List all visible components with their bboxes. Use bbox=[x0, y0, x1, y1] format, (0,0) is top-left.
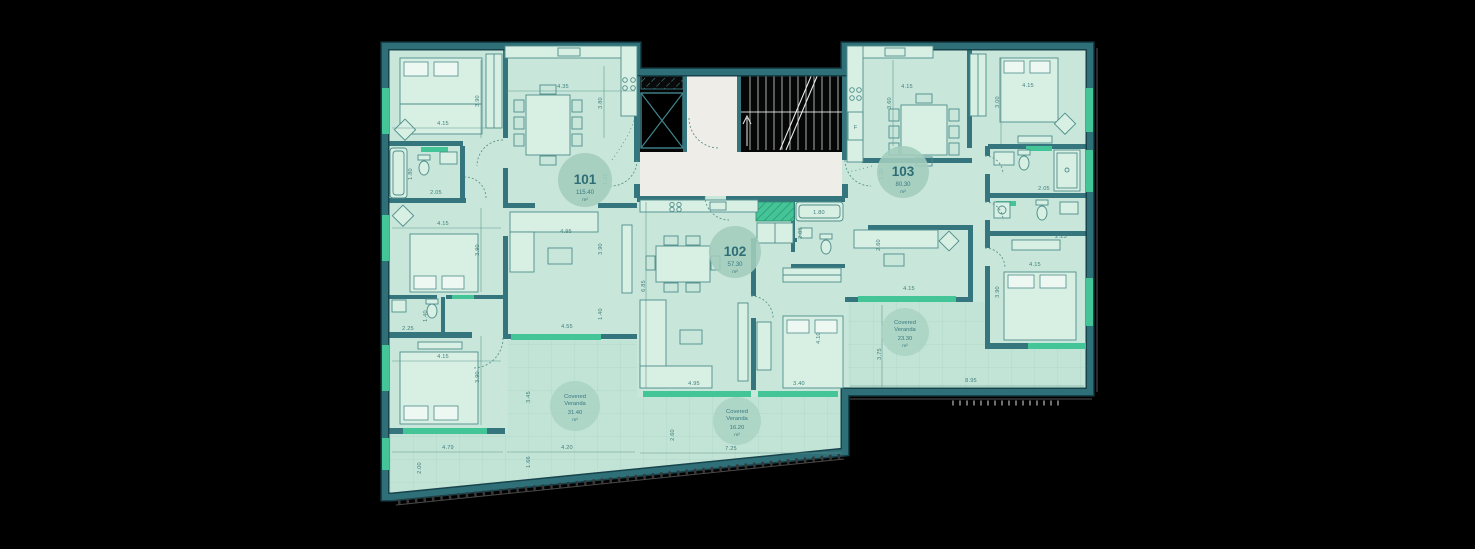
dimension-label: 1.40 bbox=[423, 310, 429, 322]
dimension-label: 2.00 bbox=[417, 462, 423, 474]
veranda-badge-102: Covered Veranda 16.20 m² bbox=[713, 397, 761, 445]
sofa-icon bbox=[640, 366, 712, 388]
dimension-label: 2.05 bbox=[430, 190, 442, 196]
staircase bbox=[741, 72, 842, 152]
toilet-icon bbox=[820, 234, 832, 239]
window-icon bbox=[382, 438, 389, 470]
veranda-area: 16.20 bbox=[730, 425, 745, 431]
dimension-label: 4.15 bbox=[437, 121, 449, 127]
pillow-icon bbox=[414, 276, 436, 289]
dimension-label: 4.95 bbox=[560, 229, 572, 235]
dimension-label: 3.90 bbox=[475, 371, 481, 383]
veranda-label: Veranda bbox=[726, 416, 748, 422]
dimension-label: 4.15 bbox=[1029, 262, 1041, 268]
floor-plan-canvas: F bbox=[0, 0, 1475, 549]
pillow-icon bbox=[1008, 275, 1034, 288]
dimension-label: 2.25 bbox=[402, 326, 414, 332]
dimension-label: 2.25 bbox=[1055, 234, 1067, 240]
dimension-label: 8.95 bbox=[965, 378, 977, 384]
unit-number: 101 bbox=[574, 172, 597, 187]
dimension-label: 4.15 bbox=[901, 84, 913, 90]
window-icon bbox=[382, 345, 389, 391]
dimension-label: 4.79 bbox=[442, 445, 454, 451]
window-icon bbox=[382, 215, 389, 261]
dimension-label: 3.00 bbox=[995, 96, 1001, 108]
fridge-label: F bbox=[854, 125, 858, 131]
dimension-label: 2.05 bbox=[798, 227, 804, 239]
pillow-icon bbox=[434, 406, 458, 420]
dimension-label: 4.95 bbox=[688, 381, 700, 387]
veranda-label: Veranda bbox=[894, 327, 916, 333]
unit-number: 103 bbox=[892, 164, 915, 179]
sliding-door-icon bbox=[403, 428, 487, 434]
toilet-icon bbox=[1018, 150, 1030, 155]
unit-area-unit: m² bbox=[582, 197, 588, 203]
pillow-icon bbox=[815, 320, 837, 333]
dresser-icon bbox=[418, 342, 462, 349]
dimension-label: 4.10 bbox=[816, 332, 822, 344]
kitchen-counter bbox=[847, 46, 863, 162]
dimension-label: 7.25 bbox=[725, 446, 737, 452]
corridor-vertical bbox=[687, 72, 741, 152]
veranda-area-unit: m² bbox=[734, 432, 740, 438]
dimension-label: 4.15 bbox=[903, 286, 915, 292]
veranda-area: 31.40 bbox=[568, 410, 583, 416]
tv-bench-icon bbox=[622, 225, 632, 293]
unit-number: 102 bbox=[724, 244, 747, 259]
niche-icon bbox=[452, 295, 474, 299]
sliding-door-icon bbox=[1028, 343, 1086, 349]
sliding-door-icon bbox=[643, 391, 751, 397]
veranda-area-unit: m² bbox=[572, 417, 578, 423]
sink-icon bbox=[392, 300, 406, 312]
dresser-icon bbox=[1018, 136, 1052, 143]
dimension-label: 1.80 bbox=[408, 168, 414, 180]
unit-area: 115.40 bbox=[576, 190, 595, 196]
unit-badge-102[interactable]: 102 57.30 m² bbox=[709, 226, 761, 278]
sliding-door-icon bbox=[758, 391, 838, 397]
veranda-label: Veranda bbox=[564, 401, 586, 407]
dimension-label: 2.05 bbox=[1038, 186, 1050, 192]
dimension-label: 1.80 bbox=[813, 210, 825, 216]
unit-area-unit: m² bbox=[900, 189, 906, 195]
toilet-icon bbox=[1036, 200, 1048, 205]
sliding-door-icon bbox=[858, 296, 956, 302]
sofa-chaise-icon bbox=[510, 232, 534, 272]
toilet-icon bbox=[426, 299, 438, 304]
pillow-icon bbox=[404, 62, 428, 76]
dining-table-icon bbox=[526, 95, 570, 155]
washing-machine-icon bbox=[994, 202, 1010, 218]
window-icon bbox=[382, 88, 389, 134]
veranda-label: Covered bbox=[564, 394, 586, 400]
pillow-icon bbox=[434, 62, 458, 76]
toilet-icon bbox=[418, 155, 430, 160]
window-icon bbox=[1086, 88, 1093, 132]
unit-badge-103[interactable]: 103 80.30 m² bbox=[877, 146, 929, 198]
unit-area: 80.30 bbox=[895, 182, 911, 188]
wardrobe-icon bbox=[1012, 240, 1060, 250]
veranda-label: Covered bbox=[726, 409, 748, 415]
dimension-label: 4.20 bbox=[561, 445, 573, 451]
sofa-icon bbox=[854, 230, 938, 248]
pillow-icon bbox=[404, 406, 428, 420]
sink-icon bbox=[994, 152, 1014, 165]
niche-icon bbox=[421, 147, 448, 152]
pillow-icon bbox=[1030, 61, 1050, 73]
pillow-icon bbox=[442, 276, 464, 289]
sliding-door-icon bbox=[511, 334, 601, 340]
dimension-label: 3.90 bbox=[995, 286, 1001, 298]
unit-area: 57.30 bbox=[727, 262, 743, 268]
dimension-label: 3.80 bbox=[598, 97, 604, 109]
veranda-area-unit: m² bbox=[902, 343, 908, 349]
veranda-badge-101: Covered Veranda 31.40 m² bbox=[550, 381, 600, 431]
veranda-area: 23.30 bbox=[898, 336, 913, 342]
corridor-horizontal bbox=[640, 150, 842, 196]
dimension-label: 4.55 bbox=[561, 324, 573, 330]
dimension-label: 3.60 bbox=[887, 97, 893, 109]
dimension-label: 4.15 bbox=[437, 354, 449, 360]
dimension-label: 3.90 bbox=[475, 244, 481, 256]
pillow-icon bbox=[787, 320, 809, 333]
skylight-hatch-icon bbox=[756, 202, 794, 221]
veranda-label: Covered bbox=[894, 320, 916, 326]
sofa-icon bbox=[510, 212, 598, 232]
shaft-hatch bbox=[641, 76, 683, 89]
sink-icon bbox=[440, 152, 457, 164]
dimension-label: 4.35 bbox=[557, 84, 569, 90]
sink-icon bbox=[1060, 202, 1078, 214]
dining-table-icon bbox=[656, 246, 710, 282]
wardrobe-icon bbox=[757, 322, 771, 370]
elevator-core bbox=[637, 72, 687, 152]
floorplan-screenshot: F bbox=[0, 0, 1475, 549]
dimension-label: 3.90 bbox=[475, 95, 481, 107]
dimension-label: 3.40 bbox=[793, 381, 805, 387]
kitchen-counter bbox=[640, 200, 758, 212]
dimension-label: 1.66 bbox=[526, 456, 532, 468]
shower-icon bbox=[1054, 150, 1080, 191]
dimension-label: 6.85 bbox=[641, 280, 647, 292]
dimension-label: 3.75 bbox=[877, 348, 883, 360]
dimension-label: 4.15 bbox=[1022, 83, 1034, 89]
veranda-badge-103: Covered Veranda 23.30 m² bbox=[881, 308, 929, 356]
dimension-label: 2.60 bbox=[876, 239, 882, 251]
tv-bench-icon bbox=[738, 303, 748, 381]
pillow-icon bbox=[1004, 61, 1024, 73]
unit-area-unit: m² bbox=[732, 269, 738, 275]
dimension-label: 4.15 bbox=[437, 221, 449, 227]
unit-badge-101[interactable]: 101 115.40 m² bbox=[558, 153, 612, 207]
dimension-label: 3.90 bbox=[598, 243, 604, 255]
dimension-label: 2.60 bbox=[670, 429, 676, 441]
pillow-icon bbox=[1040, 275, 1066, 288]
dimension-label: 1.40 bbox=[598, 308, 604, 320]
dimension-label: 3.45 bbox=[526, 391, 532, 403]
window-icon bbox=[1086, 150, 1093, 192]
window-icon bbox=[1086, 278, 1093, 326]
